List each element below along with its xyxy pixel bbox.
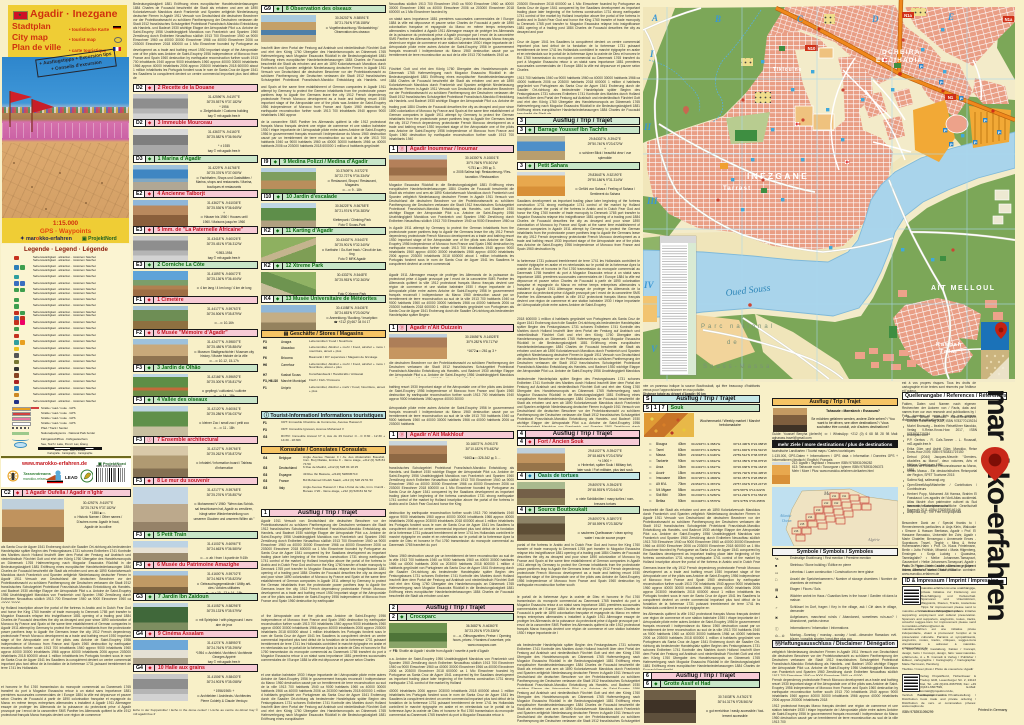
svg-text:Parc national: Parc national	[701, 324, 775, 330]
svg-text:P: P	[920, 64, 923, 69]
svg-text:215: 215	[800, 522, 805, 526]
svg-text:P: P	[960, 96, 963, 101]
svg-text:A: A	[651, 13, 658, 23]
svg-text:Tafar: Tafar	[940, 349, 958, 355]
svg-text:INEZGANE: INEZGANE	[747, 171, 809, 181]
svg-text:P: P	[998, 130, 1001, 135]
svg-text:214: 214	[808, 515, 813, 519]
svg-text:P: P	[940, 80, 943, 85]
svg-text:Algérie: Algérie	[867, 537, 880, 542]
svg-text:311: 311	[842, 494, 847, 498]
svg-text:N1a: N1a	[904, 13, 912, 18]
svg-text:Souss-Massa: Souss-Massa	[703, 364, 772, 370]
svg-text:E: E	[947, 12, 954, 22]
svg-text:211: 211	[832, 494, 837, 498]
svg-text:Atlantic: Atlantic	[779, 514, 792, 518]
svg-text:212: 212	[824, 501, 829, 505]
svg-text:N1: N1	[948, 95, 954, 100]
svg-text:B: B	[714, 14, 721, 24]
svg-text:Ocean: Ocean	[782, 519, 792, 523]
svg-text:Tarrast: Tarrast	[723, 186, 751, 192]
svg-text:IV: IV	[643, 280, 655, 290]
svg-text:P: P	[974, 140, 977, 145]
svg-text:III: III	[646, 196, 658, 206]
svg-text:N1a: N1a	[1005, 17, 1013, 22]
svg-text:D: D	[871, 14, 879, 24]
svg-text:V: V	[651, 344, 658, 354]
svg-text:marokko-reisen: marokko-reisen	[23, 477, 46, 481]
svg-text:I: I	[649, 49, 654, 59]
svg-text:P: P	[944, 128, 947, 133]
svg-text:P: P	[950, 142, 953, 147]
svg-text:216: 216	[794, 529, 799, 533]
svg-text:213: 213	[816, 508, 821, 512]
svg-text:Kasbah: Kasbah	[936, 342, 962, 348]
svg-text:de: de	[727, 340, 740, 346]
svg-text:Tikiouine: Tikiouine	[773, 67, 802, 73]
svg-text:C: C	[797, 14, 804, 24]
svg-text:LEAD: LEAD	[65, 475, 78, 480]
svg-text:P: P	[984, 118, 987, 123]
svg-text:312: 312	[834, 501, 839, 505]
svg-text:II: II	[643, 122, 652, 132]
svg-text:N10: N10	[808, 46, 816, 51]
svg-text:AÏT MELLOUL: AÏT MELLOUL	[931, 284, 996, 292]
svg-text:Tassendreams: Tassendreams	[23, 471, 52, 476]
svg-text:DCHEIRA: DCHEIRA	[882, 49, 921, 56]
